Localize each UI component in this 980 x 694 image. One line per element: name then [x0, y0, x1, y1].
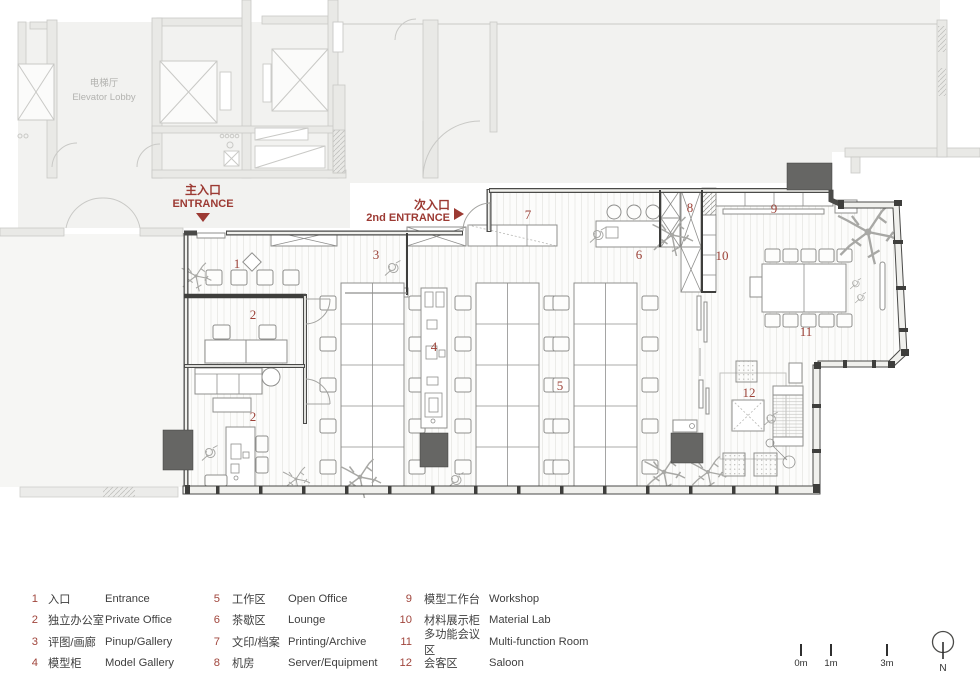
scale-label: 3m — [874, 658, 900, 669]
second-entrance-label-zh: 次入口 — [414, 197, 450, 212]
legend-en: Server/Equipment — [288, 657, 378, 669]
column — [163, 430, 193, 470]
column — [671, 433, 703, 463]
room-label-5: 5 — [557, 378, 564, 393]
scale-label: 1m — [818, 658, 844, 669]
legend-item: 9 模型工作台 Workshop — [396, 588, 588, 610]
legend-zh: 会客区 — [424, 655, 489, 671]
legend-zh: 茶歇区 — [232, 612, 288, 628]
room-label-2a: 2 — [250, 307, 257, 322]
room-label-9: 9 — [771, 201, 778, 216]
legend-zh: 模型工作台 — [424, 591, 489, 607]
side-table — [789, 363, 802, 383]
north-indicator: N — [923, 628, 963, 674]
legend-column-3: 9 模型工作台 Workshop 10 材料展示柜 Material Lab 1… — [396, 588, 588, 674]
legend-en: Private Office — [105, 614, 172, 626]
elevator-shaft — [18, 64, 54, 120]
legend-item: 6 茶歇区 Lounge — [204, 610, 378, 632]
legend-en: Material Lab — [489, 614, 551, 626]
legend-zh: 工作区 — [232, 591, 288, 607]
round-table — [262, 368, 280, 386]
second-entrance-arrow-icon — [454, 208, 464, 220]
legend-en: Model Gallery — [105, 657, 174, 669]
floor-plan-svg: 电梯厅 Elevator Lobby — [0, 0, 980, 565]
legend-item: 3 评图/画廊 Pinup/Gallery — [22, 631, 174, 653]
legend-en: Pinup/Gallery — [105, 636, 172, 648]
room-label-4: 4 — [431, 339, 438, 354]
legend-item: 12 会客区 Saloon — [396, 653, 588, 675]
room-label-8: 8 — [687, 200, 694, 215]
legend-item: 5 工作区 Open Office — [204, 588, 378, 610]
legend-en: Saloon — [489, 657, 524, 669]
legend-num: 12 — [396, 657, 412, 669]
north-label: N — [939, 663, 946, 674]
room-label-3: 3 — [373, 247, 380, 262]
legend-en: Workshop — [489, 593, 539, 605]
whiteboard — [880, 262, 885, 310]
legend-num: 8 — [204, 657, 220, 669]
legend-item: 4 模型柜 Model Gallery — [22, 653, 174, 675]
legend-column-1: 1 入口 Entrance 2 独立办公室 Private Office 3 评… — [22, 588, 174, 674]
floor-plan-page: 电梯厅 Elevator Lobby — [0, 0, 980, 694]
scale-tick-3m — [886, 644, 888, 656]
room-label-6: 6 — [636, 247, 643, 262]
legend-en: Entrance — [105, 593, 150, 605]
equipment-box — [673, 420, 697, 432]
pouffe — [723, 453, 745, 476]
legend-zh: 机房 — [232, 655, 288, 671]
legend-num: 1 — [22, 593, 38, 605]
scale-tick-1m — [830, 644, 832, 656]
main-entrance-label-en: ENTRANCE — [172, 198, 233, 210]
main-entrance-label-zh: 主入口 — [185, 182, 221, 197]
column — [787, 163, 832, 190]
legend-num: 10 — [396, 614, 412, 626]
legend-num: 2 — [22, 614, 38, 626]
elevator-lobby-label-en: Elevator Lobby — [72, 92, 136, 103]
legend-column-2: 5 工作区 Open Office 6 茶歇区 Lounge 7 文印/档案 P… — [204, 588, 378, 674]
room-label-12: 12 — [743, 385, 756, 400]
room-label-10: 10 — [716, 248, 729, 263]
legend-zh: 独立办公室 — [48, 612, 105, 628]
legend-num: 6 — [204, 614, 220, 626]
legend-num: 3 — [22, 636, 38, 648]
column — [420, 433, 448, 467]
legend-item: 2 独立办公室 Private Office — [22, 610, 174, 632]
room-label-7: 7 — [525, 207, 532, 222]
room-label-11: 11 — [800, 324, 813, 339]
room-label-1: 1 — [234, 256, 241, 271]
legend-num: 11 — [396, 636, 412, 648]
executive-desk — [226, 427, 255, 487]
legend-zh: 多功能会议区 — [424, 626, 489, 658]
legend-en: Open Office — [288, 593, 348, 605]
legend-item: 11 多功能会议区 Multi-function Room — [396, 631, 588, 653]
second-entrance-label-en: 2nd ENTRANCE — [366, 212, 450, 224]
legend-num: 7 — [204, 636, 220, 648]
legend-num: 4 — [22, 657, 38, 669]
legend-en: Multi-function Room — [489, 636, 588, 648]
legend-item: 8 机房 Server/Equipment — [204, 653, 378, 675]
room-label-2b: 2 — [250, 409, 257, 424]
model-cabinet — [421, 288, 447, 428]
pouffe — [754, 453, 777, 476]
legend-en: Printing/Archive — [288, 636, 366, 648]
legend-en: Lounge — [288, 614, 325, 626]
legend-zh: 文印/档案 — [232, 634, 288, 650]
legend-zh: 评图/画廊 — [48, 634, 105, 650]
legend-zh: 入口 — [48, 591, 105, 607]
scale-tick-0m — [800, 644, 802, 656]
legend-zh: 模型柜 — [48, 655, 105, 671]
elevator-lobby-label-zh: 电梯厅 — [90, 77, 119, 89]
scale-label: 0m — [788, 658, 814, 669]
elevator-shaft — [272, 49, 328, 111]
pouffe — [736, 361, 757, 382]
elevator-shaft — [160, 61, 217, 123]
legend-num: 9 — [396, 593, 412, 605]
legend-item: 7 文印/档案 Printing/Archive — [204, 631, 378, 653]
legend-num: 5 — [204, 593, 220, 605]
legend-item: 1 入口 Entrance — [22, 588, 174, 610]
